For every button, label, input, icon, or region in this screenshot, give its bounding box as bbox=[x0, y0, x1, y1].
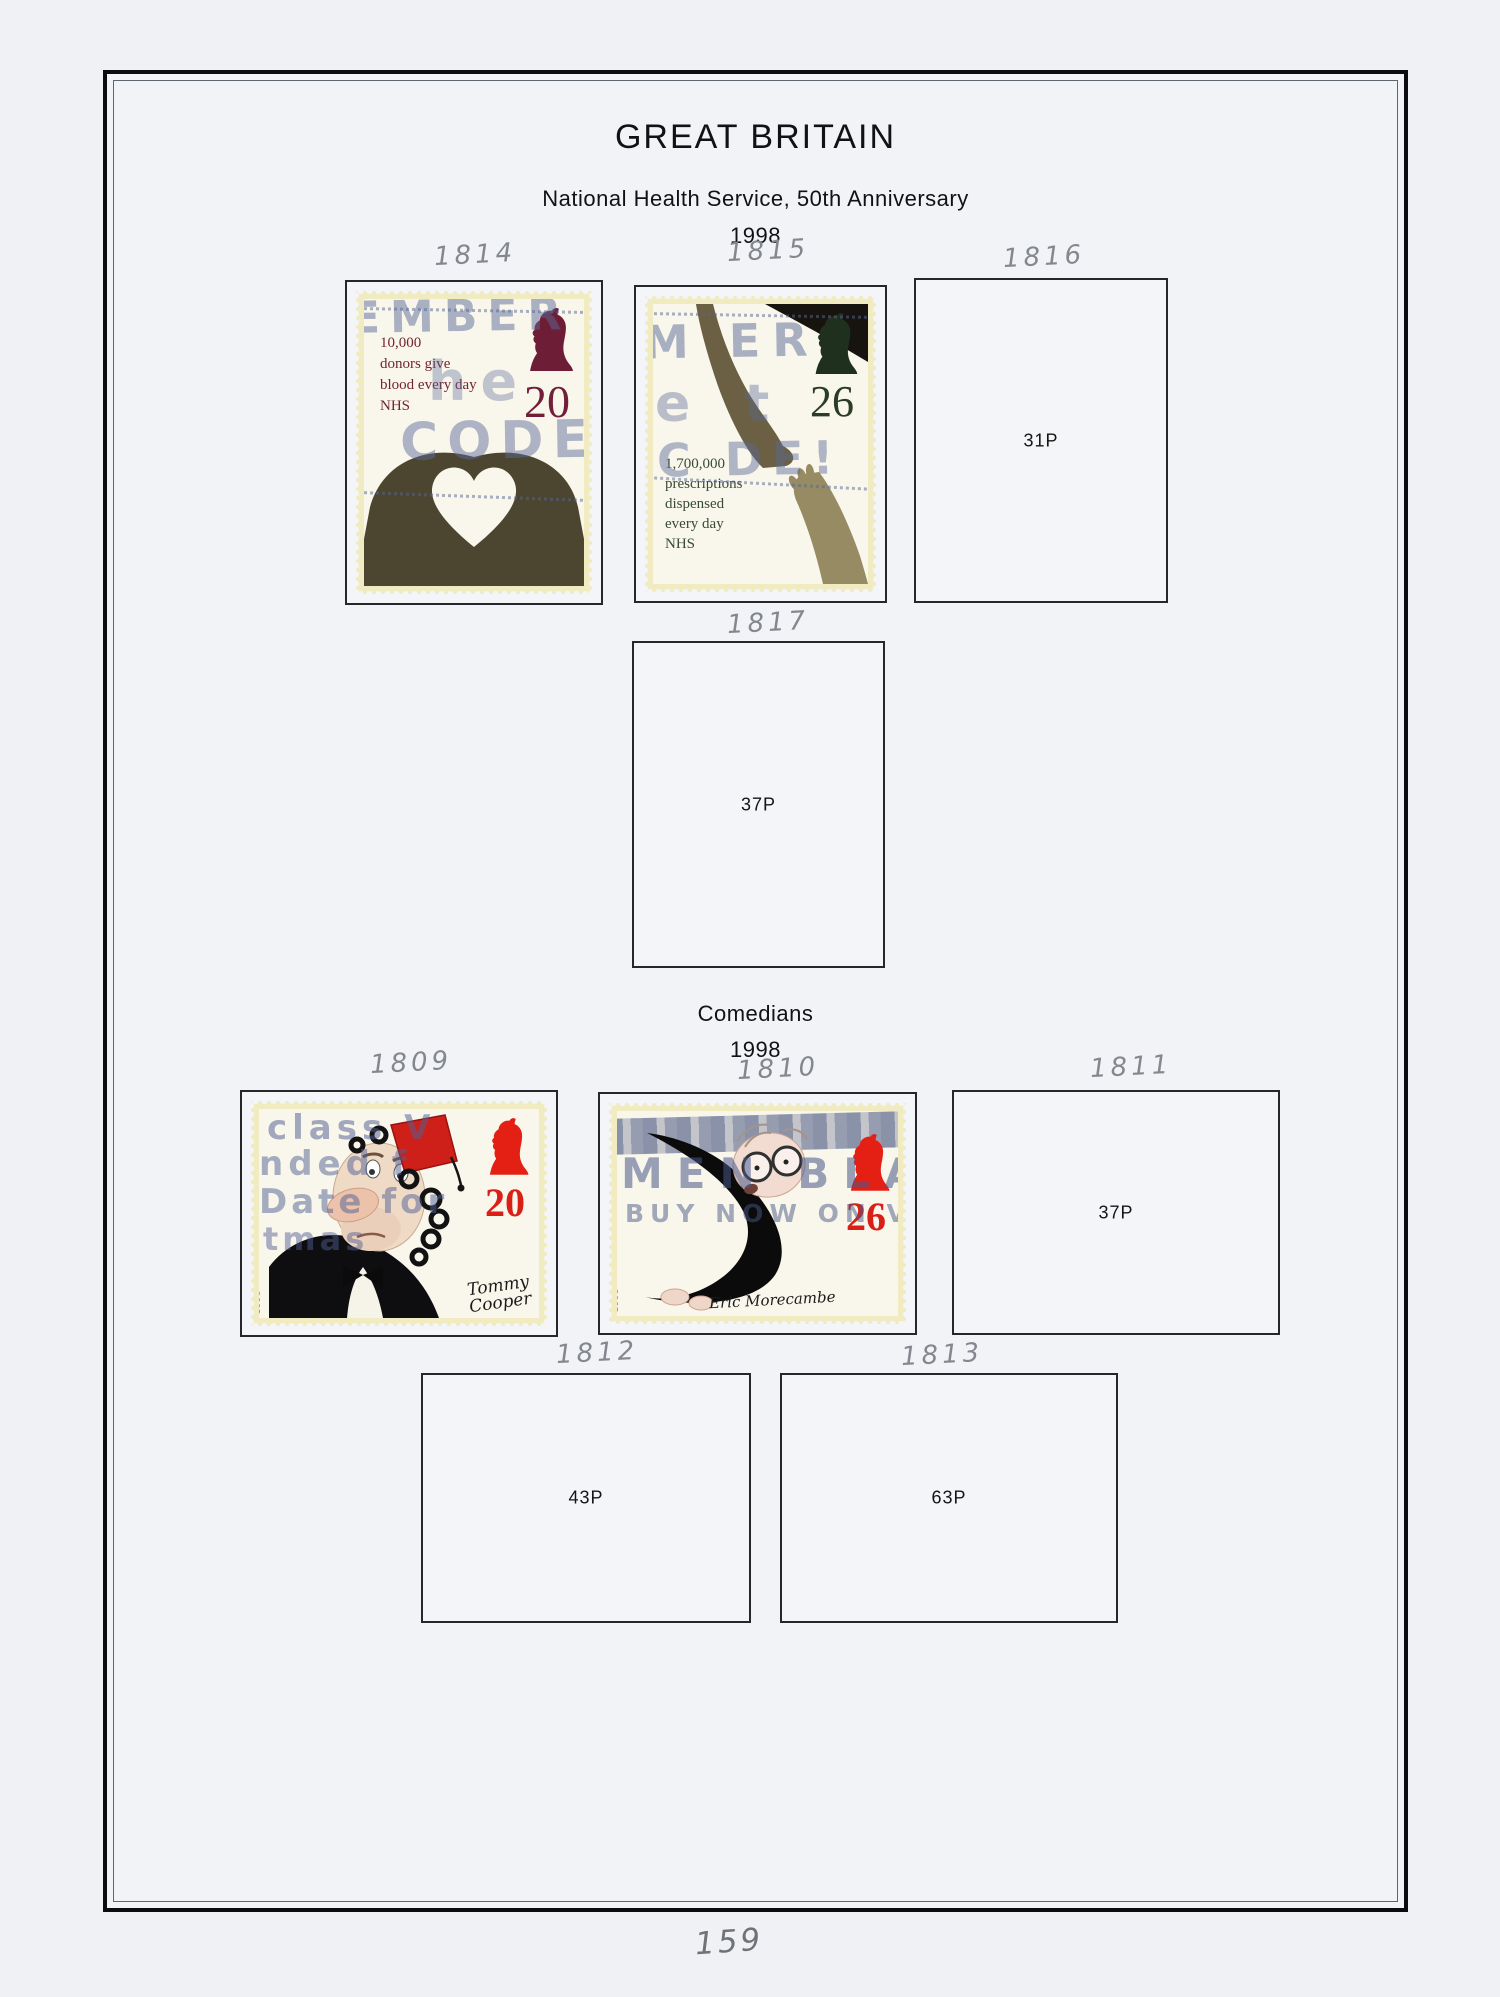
pencil-number-1813: 1813 bbox=[900, 1338, 984, 1372]
denomination-26: 26 bbox=[810, 380, 854, 424]
empty-slot-1811: 37P bbox=[952, 1090, 1280, 1335]
postmark-text: C DE! bbox=[657, 434, 843, 483]
postmark-text: nded f bbox=[259, 1147, 412, 1181]
caption-line: NHS bbox=[665, 534, 742, 554]
pencil-number-1814: 1814 bbox=[433, 238, 517, 272]
hand bbox=[661, 1289, 689, 1305]
fez-tassel-end bbox=[458, 1185, 465, 1192]
denomination-20: 20 bbox=[485, 1183, 525, 1223]
stamp-1815-nhs-26p: 1,700,000 prescriptions dispensed every … bbox=[645, 296, 876, 592]
nhs-section-title: National Health Service, 50th Anniversar… bbox=[103, 186, 1408, 212]
empty-slot-1813: 63P bbox=[780, 1373, 1118, 1623]
stamp-1810-artwork: 26 MEN BLA BUY NOW ON VE Eric Morecambe … bbox=[617, 1111, 898, 1316]
stamp-1809-comedians-20p: 20 class V nded f Date for tmas Tommy Co… bbox=[251, 1101, 547, 1326]
stamp-1814-artwork: 10,000 donors give blood every day NHS 2… bbox=[364, 299, 584, 586]
postmark-text: BUY NOW ON VE bbox=[625, 1201, 898, 1226]
stamp-mount-1810: 26 MEN BLA BUY NOW ON VE Eric Morecambe … bbox=[598, 1092, 917, 1335]
slot-value-label: 31P bbox=[916, 430, 1166, 451]
postmark-text: tmas bbox=[263, 1223, 368, 1255]
tommy-cooper-signature: Tommy Cooper bbox=[466, 1274, 533, 1316]
caption-line: every day bbox=[665, 514, 742, 534]
postmark-text: he bbox=[428, 355, 531, 409]
pencil-number-1815: 1815 bbox=[726, 234, 810, 268]
postmark-text: Date for bbox=[259, 1185, 448, 1219]
stamp-margin-year: 1998 bbox=[617, 1288, 620, 1312]
stamp-1810-comedians-26p: 26 MEN BLA BUY NOW ON VE Eric Morecambe … bbox=[609, 1103, 906, 1324]
stamp-1809-artwork: 20 class V nded f Date for tmas Tommy Co… bbox=[259, 1109, 539, 1318]
caption-line: dispensed bbox=[665, 494, 742, 514]
stamp-mount-1814: 10,000 donors give blood every day NHS 2… bbox=[345, 280, 603, 605]
postmark-text: e t bbox=[655, 378, 787, 430]
postmark-text: CODE! bbox=[400, 413, 584, 469]
pencil-number-1811: 1811 bbox=[1089, 1050, 1173, 1084]
stamp-1815-artwork: 1,700,000 prescriptions dispensed every … bbox=[653, 304, 868, 584]
slot-value-label: 37P bbox=[634, 794, 883, 815]
slot-value-label: 37P bbox=[954, 1202, 1278, 1223]
pencil-number-1812: 1812 bbox=[555, 1336, 639, 1370]
page-number: 159 bbox=[694, 1922, 765, 1963]
country-title: GREAT BRITAIN bbox=[103, 118, 1408, 157]
slot-value-label: 43P bbox=[423, 1488, 749, 1509]
empty-slot-1812: 43P bbox=[421, 1373, 751, 1623]
stamp-margin-year: 1998 bbox=[259, 1290, 262, 1314]
queen-silhouette-icon bbox=[483, 1117, 529, 1175]
album-page: GREAT BRITAIN National Health Service, 5… bbox=[0, 0, 1500, 1997]
stamp-mount-1809: 20 class V nded f Date for tmas Tommy Co… bbox=[240, 1090, 558, 1337]
postmark-text: M ER bbox=[653, 316, 820, 365]
postmark-text: EMBER bbox=[364, 299, 572, 341]
empty-slot-1817: 37P bbox=[632, 641, 885, 968]
comedians-section-title: Comedians bbox=[103, 1001, 1408, 1027]
postmark-text: MEN BLA bbox=[621, 1153, 898, 1195]
empty-slot-1816: 31P bbox=[914, 278, 1168, 603]
pencil-number-1810: 1810 bbox=[736, 1052, 820, 1086]
slot-value-label: 63P bbox=[782, 1488, 1116, 1509]
stamp-1814-nhs-20p: 10,000 donors give blood every day NHS 2… bbox=[356, 291, 592, 594]
stamp-mount-1815: 1,700,000 prescriptions dispensed every … bbox=[634, 285, 887, 603]
pencil-number-1817: 1817 bbox=[726, 606, 810, 640]
pencil-number-1809: 1809 bbox=[369, 1046, 453, 1080]
postmark-text: class V bbox=[267, 1111, 435, 1145]
pencil-number-1816: 1816 bbox=[1002, 240, 1086, 274]
